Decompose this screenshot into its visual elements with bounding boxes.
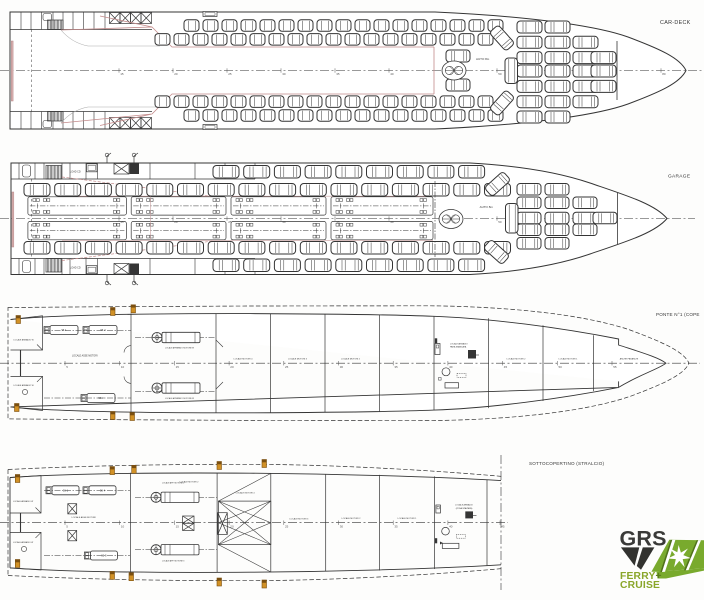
svg-text:LOCALE APP. MOTORE 3: LOCALE APP. MOTORE 3 bbox=[162, 560, 184, 563]
svg-text:LOCALE MOTORI 4: LOCALE MOTORI 4 bbox=[234, 358, 254, 361]
svg-text:LOCALE ARMADIO W: LOCALE ARMADIO W bbox=[13, 500, 33, 503]
svg-text:LOCALE MOTORI 1: LOCALE MOTORI 1 bbox=[559, 358, 579, 361]
svg-text:LOCALE ARMADIO: LOCALE ARMADIO bbox=[455, 504, 473, 507]
svg-text:CAR-DECK: CAR-DECK bbox=[660, 20, 691, 26]
svg-text:40: 40 bbox=[390, 72, 394, 76]
svg-text:40: 40 bbox=[390, 220, 394, 224]
svg-text:GARAGE: GARAGE bbox=[668, 174, 690, 180]
svg-text:10: 10 bbox=[121, 524, 125, 528]
svg-text:LOCALE MOTORI 2: LOCALE MOTORI 2 bbox=[342, 517, 362, 520]
svg-text:LOCALE ARMADIO: LOCALE ARMADIO bbox=[450, 343, 468, 346]
svg-text:35: 35 bbox=[336, 72, 340, 76]
svg-text:PARA SBANDATA: PARA SBANDATA bbox=[450, 346, 467, 349]
svg-text:50: 50 bbox=[498, 220, 502, 224]
svg-text:LOCALE MOTORI 3: LOCALE MOTORI 3 bbox=[288, 358, 308, 361]
svg-text:25: 25 bbox=[285, 524, 289, 528]
svg-text:56 2: 56 2 bbox=[100, 328, 106, 332]
svg-text:LOCALE ASSE MOTORI: LOCALE ASSE MOTORI bbox=[72, 516, 97, 519]
svg-text:CRUISE: CRUISE bbox=[620, 580, 660, 591]
svg-text:25: 25 bbox=[285, 365, 289, 369]
svg-text:45: 45 bbox=[504, 365, 508, 369]
svg-text:30: 30 bbox=[282, 220, 286, 224]
svg-text:SOTTOCOPERTINO (STRALCIO): SOTTOCOPERTINO (STRALCIO) bbox=[529, 461, 605, 466]
svg-text:(ZONA SPAZIATA): (ZONA SPAZIATA) bbox=[456, 507, 473, 510]
svg-text:LOCALE ARMADIO W: LOCALE ARMADIO W bbox=[13, 541, 33, 544]
svg-text:LOCALE MOTORI 2: LOCALE MOTORI 2 bbox=[341, 358, 361, 361]
svg-text:LOCALE APPARATO MOTORE W: LOCALE APPARATO MOTORE W bbox=[165, 397, 194, 400]
svg-text:80: 80 bbox=[662, 72, 666, 76]
svg-text:25: 25 bbox=[228, 72, 232, 76]
svg-text:15: 15 bbox=[120, 72, 124, 76]
svg-text:LOCALE MOTORI 4: LOCALE MOTORI 4 bbox=[236, 492, 256, 495]
svg-text:PONTE N°1 (COPE: PONTE N°1 (COPE bbox=[656, 312, 700, 317]
svg-text:10: 10 bbox=[121, 365, 125, 369]
svg-text:30: 30 bbox=[282, 72, 286, 76]
svg-text:LOCALE MOTORI 2: LOCALE MOTORI 2 bbox=[507, 358, 527, 361]
svg-text:LOCALE MOTORI 3: LOCALE MOTORI 3 bbox=[290, 518, 310, 521]
svg-text:56 1: 56 1 bbox=[61, 328, 67, 332]
svg-text:LOCALE APPARATO MOTORE W: LOCALE APPARATO MOTORE W bbox=[165, 346, 194, 349]
svg-text:15: 15 bbox=[176, 365, 180, 369]
svg-text:LOCALE ASSE MOTORI: LOCALE ASSE MOTORI bbox=[72, 355, 98, 358]
svg-text:LOCALE MOTORI 1: LOCALE MOTORI 1 bbox=[398, 517, 418, 520]
svg-text:30: 30 bbox=[340, 365, 344, 369]
svg-text:20: 20 bbox=[230, 365, 234, 369]
svg-text:15: 15 bbox=[120, 220, 124, 224]
svg-text:20: 20 bbox=[174, 220, 178, 224]
svg-text:55: 55 bbox=[613, 365, 617, 369]
svg-text:20: 20 bbox=[174, 72, 178, 76]
svg-text:LOCALE ARMADIO W: LOCALE ARMADIO W bbox=[14, 339, 34, 342]
svg-text:35: 35 bbox=[394, 365, 398, 369]
svg-text:AUTO 8m: AUTO 8m bbox=[480, 205, 494, 209]
svg-text:50: 50 bbox=[559, 365, 563, 369]
svg-text:40: 40 bbox=[449, 365, 453, 369]
svg-text:45: 45 bbox=[501, 524, 505, 528]
svg-text:30: 30 bbox=[340, 524, 344, 528]
svg-text:LOCALE MOTORI 2: LOCALE MOTORI 2 bbox=[180, 481, 200, 484]
svg-text:15: 15 bbox=[176, 524, 180, 528]
svg-text:35: 35 bbox=[394, 524, 398, 528]
svg-text:LOCALE ARMADIO W: LOCALE ARMADIO W bbox=[14, 384, 34, 387]
svg-text:LOAD CD: LOAD CD bbox=[70, 267, 81, 270]
svg-text:LOAD CD: LOAD CD bbox=[70, 170, 81, 173]
svg-text:AUTO 8m: AUTO 8m bbox=[476, 57, 490, 61]
svg-text:ANCHE PARANCHI: ANCHE PARANCHI bbox=[620, 358, 639, 361]
svg-text:GRS: GRS bbox=[620, 526, 667, 550]
svg-text:50: 50 bbox=[498, 72, 502, 76]
svg-text:40: 40 bbox=[449, 524, 453, 528]
